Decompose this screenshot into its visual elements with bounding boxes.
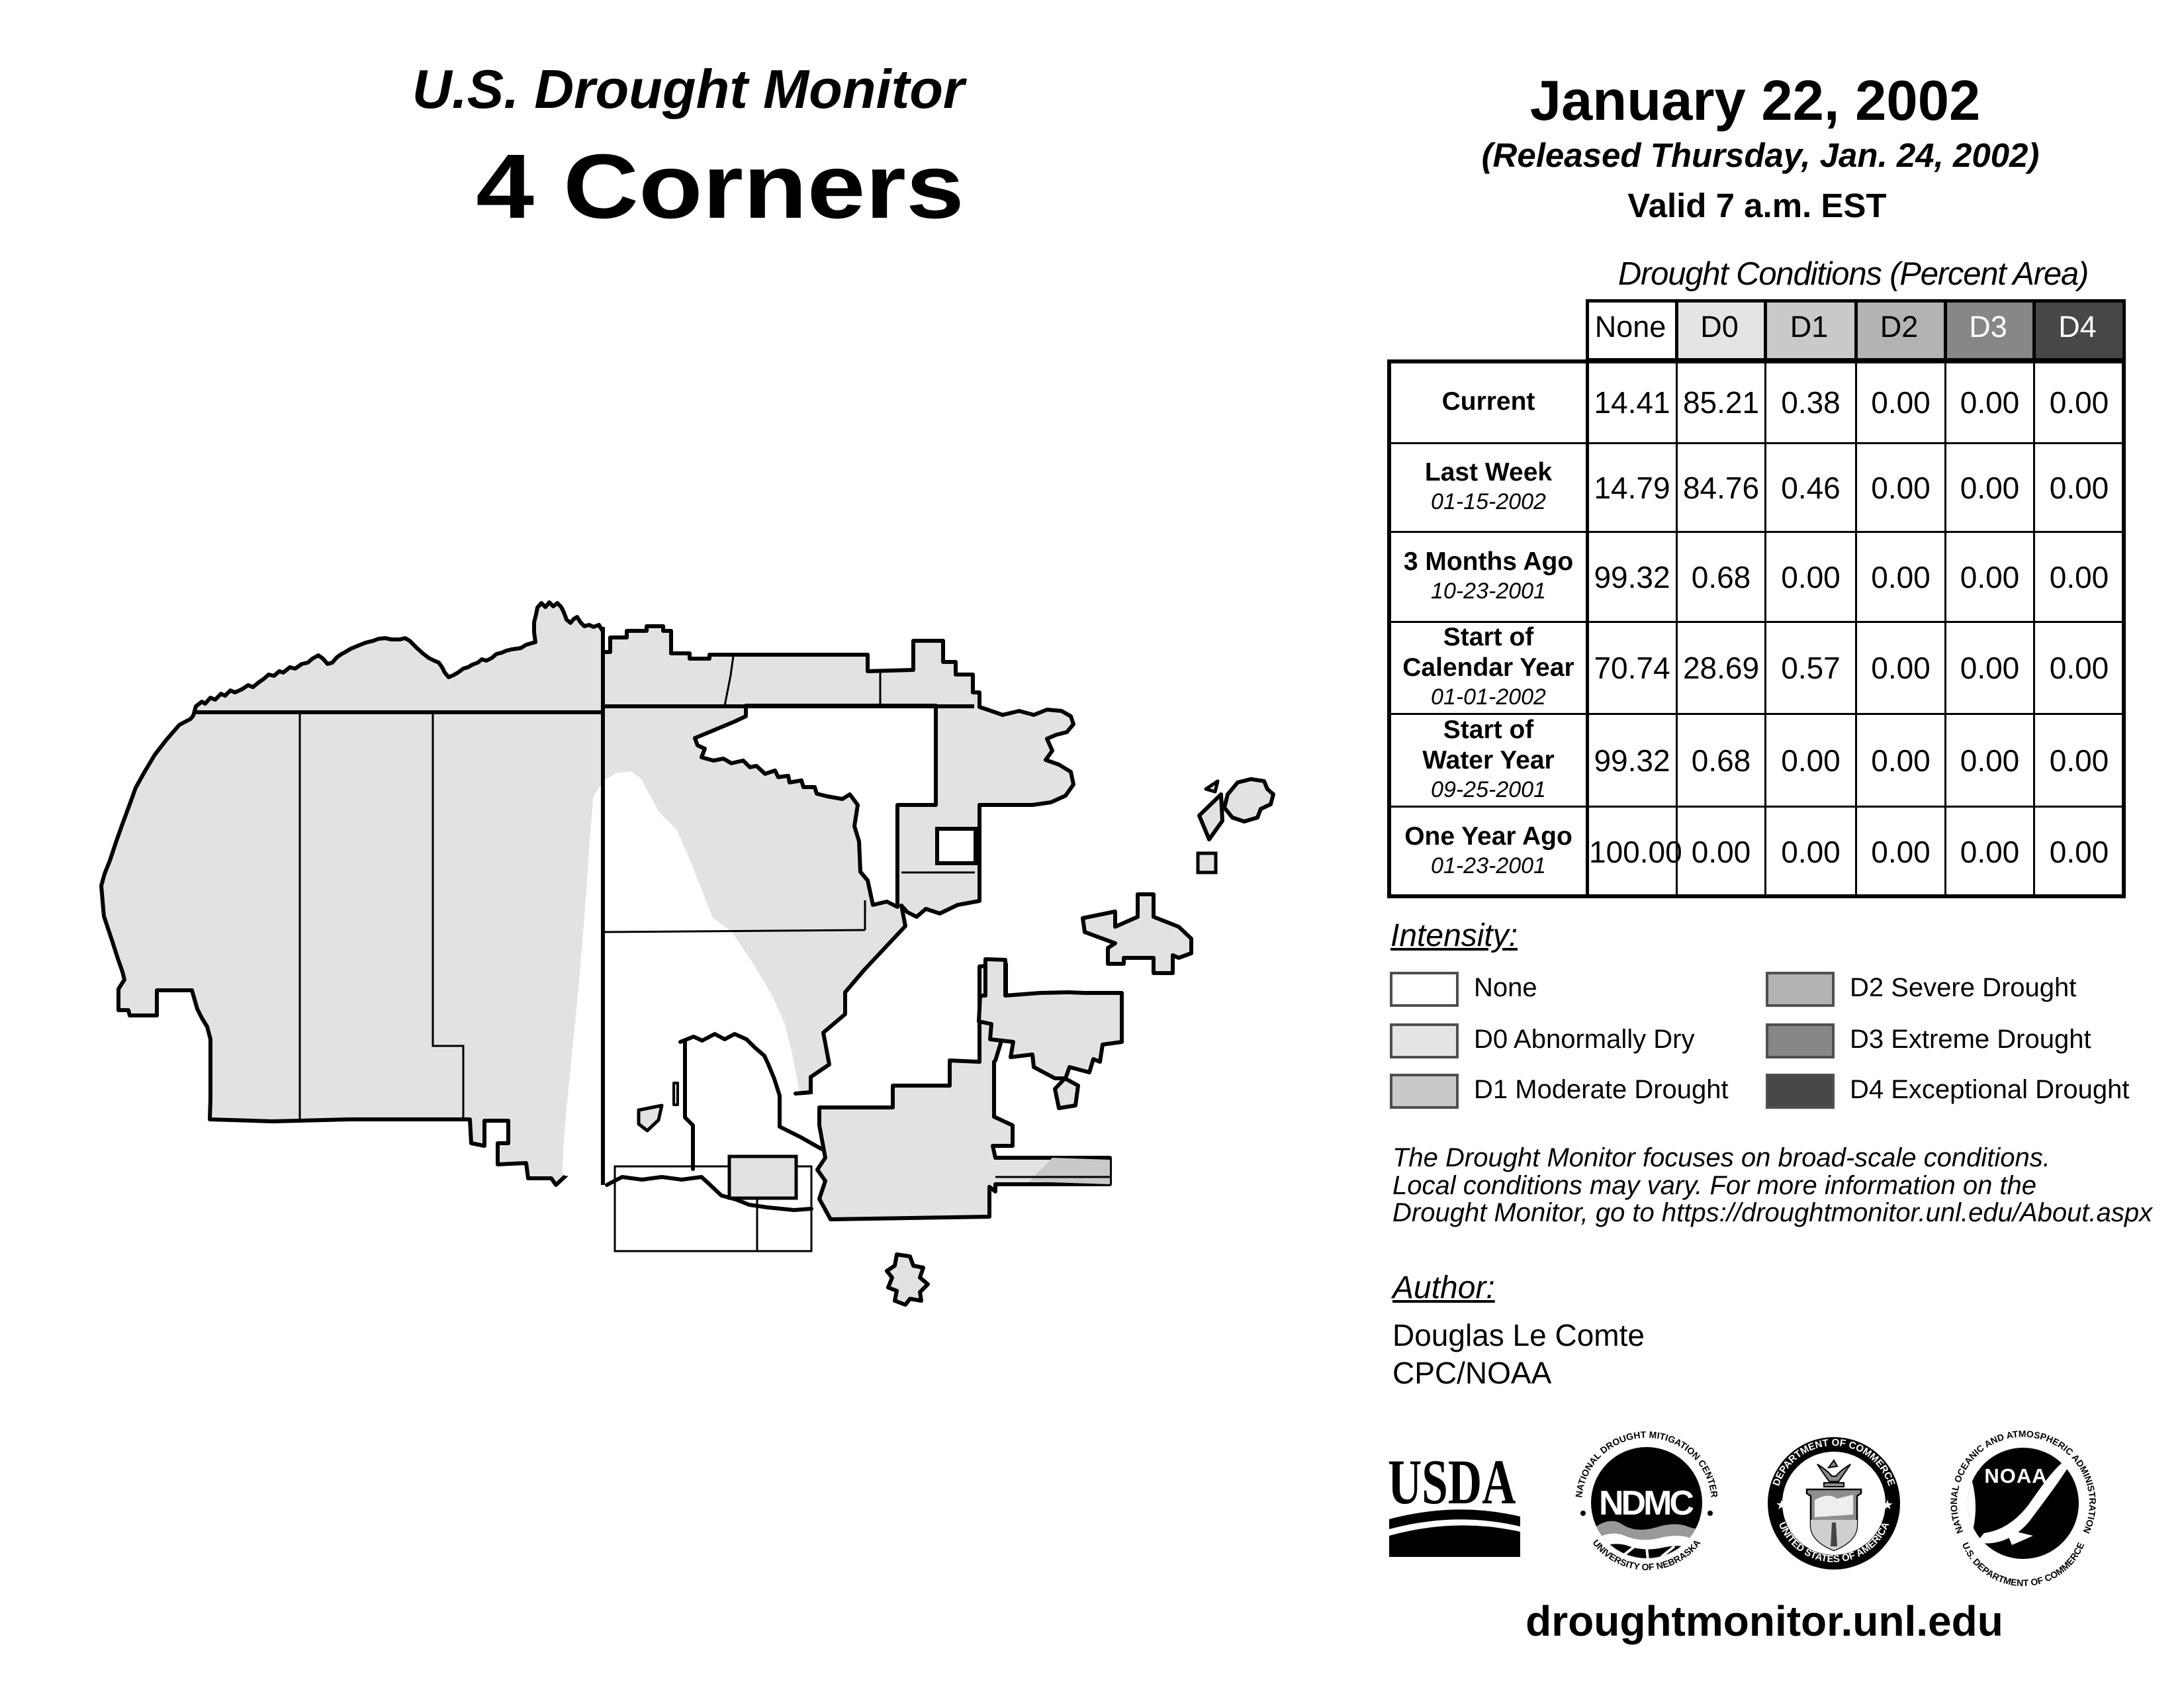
svg-text:USDA: USDA [1388,1448,1516,1518]
svg-text:NOAA: NOAA [1984,1464,2047,1487]
svg-text:NDMC: NDMC [1599,1484,1694,1523]
svg-text:★: ★ [1882,1498,1893,1513]
svg-text:★: ★ [1776,1498,1788,1513]
